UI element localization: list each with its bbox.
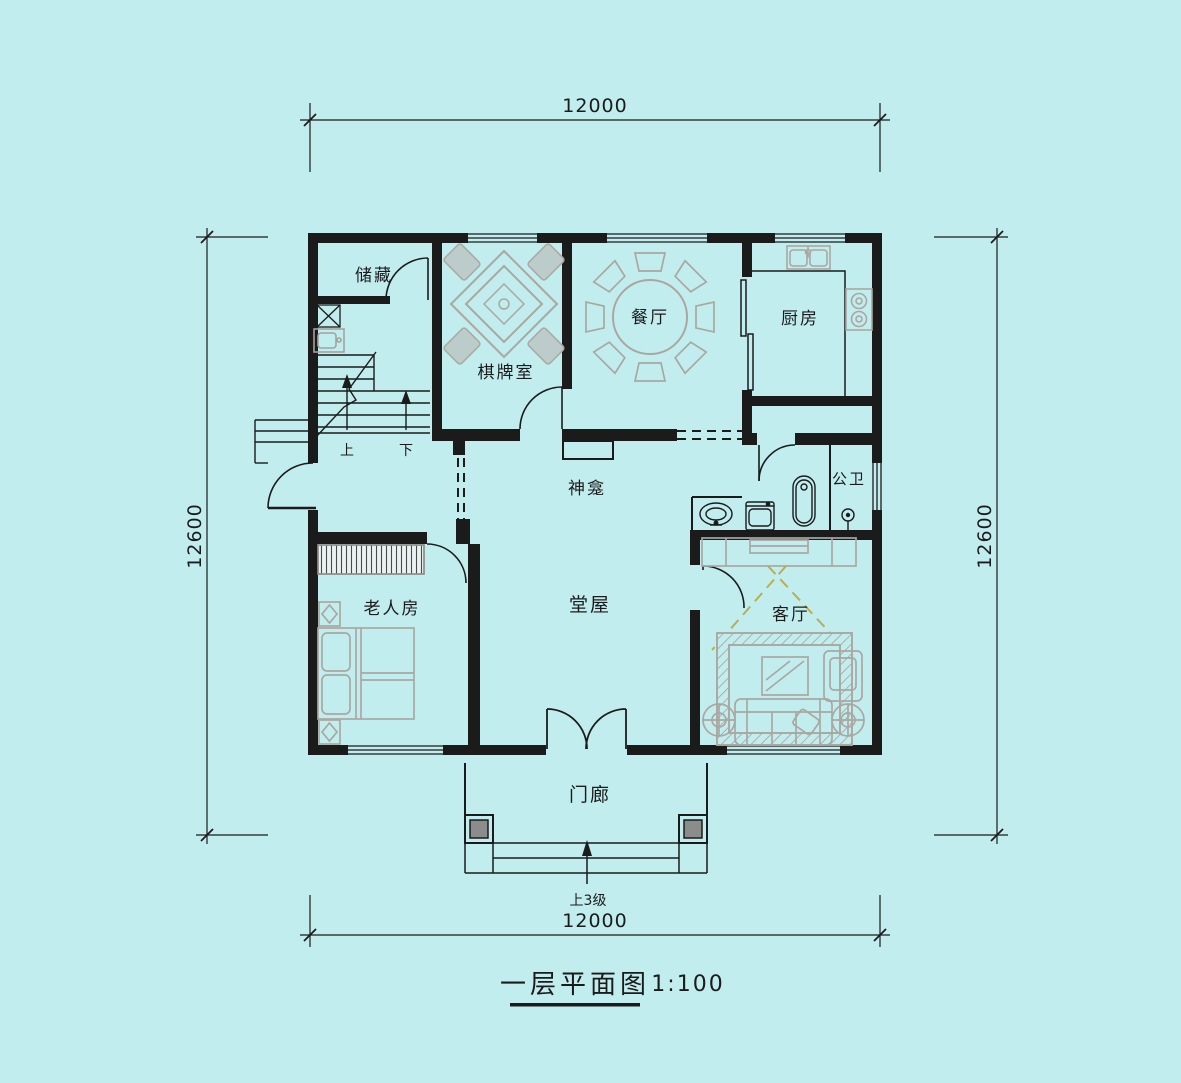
wall-hall-north-1: [432, 429, 520, 441]
room-label-porch: 门廊: [569, 784, 611, 806]
room-label-elder: 老人房: [364, 599, 421, 619]
side-landing-steps: [255, 420, 308, 463]
wall-bath-north-1: [742, 433, 757, 445]
room-label-kitchen: 厨房: [781, 309, 819, 329]
wall-left-2: [308, 510, 318, 755]
porch-column: [679, 815, 707, 843]
nightstand: [319, 602, 340, 626]
entry-steps-note: 上3级: [570, 893, 607, 909]
stairs-up-label: 上: [340, 443, 354, 459]
wall-bedroom-east: [468, 544, 480, 755]
floor-plan-page: 12000 12000 12600 12600: [0, 0, 1181, 1083]
tv-cabinet: [702, 538, 856, 566]
kitchen-sink: [787, 246, 830, 269]
dim-value-left: 12600: [184, 503, 206, 568]
bathtub: [793, 476, 815, 526]
window-kitchen: [775, 234, 845, 242]
porch-column: [465, 815, 493, 843]
door-chess: [520, 387, 562, 429]
window-dining: [607, 234, 707, 242]
room-label-bathroom: 公卫: [832, 470, 866, 488]
dashed-openings: [458, 431, 742, 519]
wall-living-west-2: [690, 610, 700, 745]
room-label-shrine: 神龛: [568, 479, 606, 499]
window-bathroom: [873, 463, 881, 510]
kitchen-stove: [846, 289, 872, 330]
wall-dining-kitchen-1: [742, 233, 752, 277]
porch: [465, 763, 707, 884]
pillow: [322, 633, 350, 671]
stairs-down-label: 下: [399, 443, 413, 459]
storage-fixtures: [314, 305, 344, 352]
coffee-table: [762, 657, 808, 695]
mahjong-table-set: [443, 243, 565, 365]
wall-storage-chess: [432, 233, 442, 441]
room-label-hall: 堂屋: [569, 594, 611, 616]
drawing-title: 一层平面图: [500, 970, 650, 1000]
room-label-living: 客厅: [772, 605, 810, 625]
kitchen-counter: [752, 271, 845, 396]
room-label-dining: 餐厅: [631, 308, 669, 328]
room-label-storage: 储藏: [355, 266, 393, 286]
wall-right-1: [872, 233, 882, 463]
sliding-door-kitchen: [741, 280, 753, 390]
side-stool: [832, 704, 864, 736]
pillow: [322, 675, 350, 714]
door-hall-double: [547, 709, 626, 749]
wall-chess-dining: [562, 233, 572, 389]
title-underline: [510, 1003, 640, 1007]
wall-bottom-2: [443, 745, 546, 755]
wall-top-1: [308, 233, 468, 243]
utility-box: [317, 305, 340, 327]
bed: [318, 628, 414, 719]
dim-value-bottom: 12000: [562, 910, 627, 932]
wall-living-west-1: [690, 540, 700, 565]
shrine-niche: [563, 441, 613, 459]
door-living: [703, 566, 744, 608]
side-stool: [703, 704, 735, 736]
staircase: [316, 352, 430, 437]
wall-bath-north-2: [795, 433, 874, 445]
wall-bedroom-north: [308, 532, 427, 544]
bedroom-furniture: [318, 545, 424, 744]
wall-hall-north-2: [562, 429, 677, 441]
window-living: [727, 746, 840, 754]
stair-arrow-down: [401, 390, 411, 430]
door-bedroom: [427, 544, 466, 583]
stair-arrow-up: [342, 374, 352, 430]
living-room-furniture: [702, 538, 864, 745]
drawing-title-block: 一层平面图 1:100: [500, 970, 725, 1007]
wall-bottom-3: [627, 745, 727, 755]
entry-arrow: [582, 840, 592, 884]
window-chess: [468, 234, 537, 242]
wall-storage-south: [308, 296, 390, 304]
wall-top-3: [707, 233, 775, 243]
wall-left-1: [308, 233, 318, 463]
washbasin: [700, 503, 732, 525]
floor-drain: [842, 509, 854, 532]
wall-kitchen-south: [752, 396, 874, 406]
wall-right-2: [872, 510, 882, 755]
washing-machine: [746, 502, 774, 530]
dim-value-right: 12600: [974, 503, 996, 568]
room-label-chess: 棋牌室: [478, 363, 535, 383]
wardrobe: [318, 545, 424, 574]
door-bathroom: [759, 445, 795, 481]
dim-value-top: 12000: [562, 95, 627, 117]
laundry-sink: [314, 329, 344, 352]
window-bedroom: [348, 746, 443, 754]
mahjong-chairs: [443, 243, 565, 365]
floor-plan-drawing: 12000 12000 12600 12600: [0, 0, 1181, 1083]
wall-bedroom-stub: [456, 519, 470, 544]
nightstand: [319, 720, 340, 744]
drawing-scale: 1:100: [651, 972, 724, 997]
door-side-entry: [268, 463, 316, 508]
stair-break-line: [316, 352, 376, 437]
